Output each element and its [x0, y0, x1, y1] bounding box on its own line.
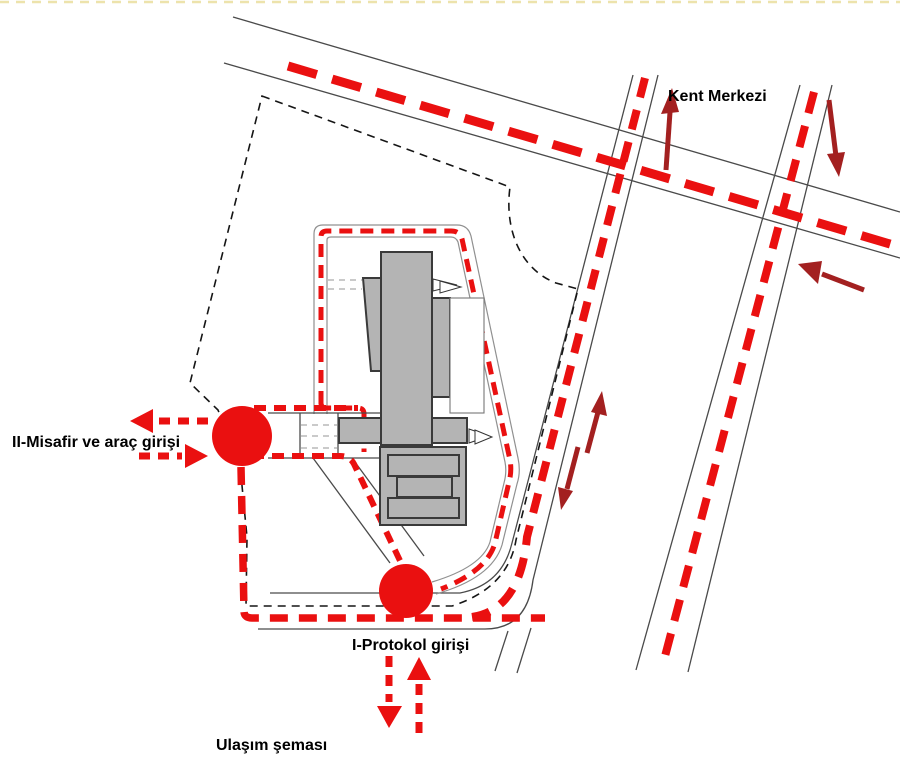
guest-enter-arrow-icon [185, 444, 208, 468]
site-plan-diagram: Kent Merkezi II-Misafir ve araç girişi I… [0, 0, 900, 771]
protocol-exit-arrow-icon [377, 706, 402, 728]
city-center-up-arrow-shaft [666, 112, 670, 170]
diagonal-lane-edge [313, 458, 390, 563]
street-down-arrow-icon [558, 487, 573, 510]
street-down-arrow-shaft [567, 447, 578, 489]
traffic-direction-arrows [558, 88, 864, 510]
road-edge [517, 628, 531, 673]
road-edge [688, 85, 832, 672]
street-up-arrow-shaft [587, 412, 598, 453]
entrance-node-protocol [379, 564, 433, 618]
protocol-enter-arrow-icon [407, 657, 431, 680]
label-protocol-entrance: I-Protokol girişi [352, 637, 469, 654]
building-lower-room-3 [388, 498, 459, 518]
ramp-hatch-icon [475, 430, 492, 444]
east-street-down-arrow-shaft [829, 100, 836, 156]
building-right-wing [432, 298, 450, 397]
avenue-left-arrow-icon [798, 261, 822, 284]
avenue-left-arrow-shaft [822, 274, 864, 290]
route-east-street [664, 92, 814, 660]
ramp-hatch-icon [440, 281, 461, 293]
entrance-node-guest [212, 406, 272, 466]
street-up-arrow-icon [591, 391, 607, 416]
street-routes [241, 66, 900, 660]
protocol-entrance-arrows [377, 656, 431, 736]
label-guest-entrance: II-Misafir ve araç girişi [12, 434, 180, 451]
label-city-center: Kent Merkezi [668, 88, 767, 105]
transportation-scheme-svg: Kent Merkezi II-Misafir ve araç girişi I… [0, 0, 900, 771]
building-annex-outline [450, 298, 484, 413]
building-lower-room-1 [388, 455, 459, 476]
building-left-wing [363, 278, 381, 371]
guest-exit-arrow-icon [130, 409, 153, 433]
road-network [224, 17, 900, 673]
east-street-down-arrow-icon [827, 152, 845, 177]
route-diagonal-avenue [288, 66, 900, 247]
label-diagram-title: Ulaşım şeması [216, 737, 327, 754]
road-edge [233, 17, 900, 212]
building-tower [381, 252, 432, 445]
building-lower-room-2 [397, 477, 452, 497]
road-edge [495, 631, 508, 671]
